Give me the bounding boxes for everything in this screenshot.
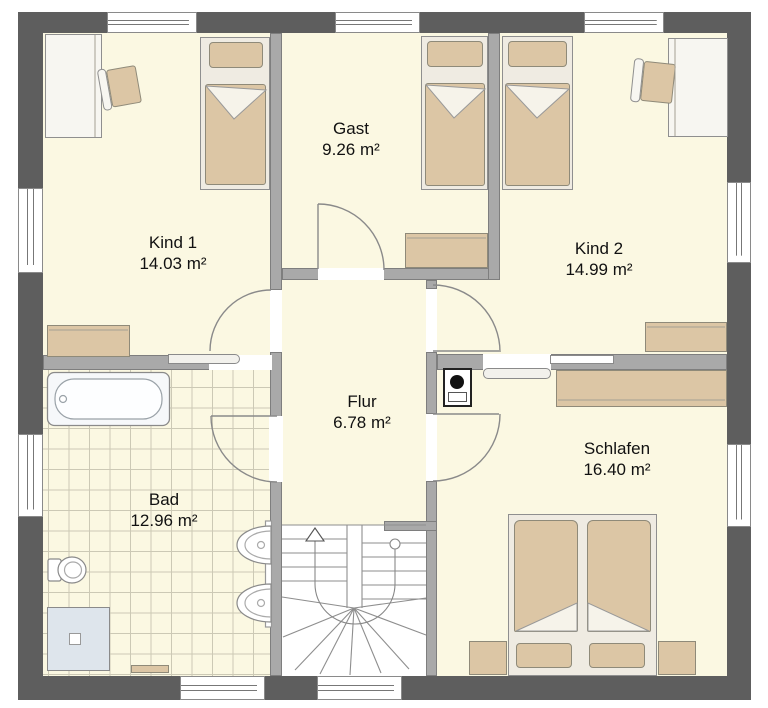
room-area: 9.26 m²	[322, 139, 380, 160]
room-name: Bad	[130, 489, 197, 510]
label-kind2: Kind 2 14.99 m²	[565, 238, 632, 280]
room-area: 14.99 m²	[565, 259, 632, 280]
label-kind1: Kind 1 14.03 m²	[139, 232, 206, 274]
label-schlafen: Schlafen 16.40 m²	[583, 438, 650, 480]
winder-treads	[282, 597, 426, 675]
gast-door-arc	[318, 204, 384, 270]
label-bad: Bad 12.96 m²	[130, 489, 197, 531]
room-area: 16.40 m²	[583, 459, 650, 480]
duvet-folds	[206, 85, 649, 631]
floor-plan: Gast 9.26 m² Kind 1 14.03 m² Kind 2 14.9…	[0, 0, 768, 708]
washbasins	[237, 521, 272, 627]
schlafen-door-arc	[433, 414, 500, 481]
plan-linework	[0, 0, 768, 708]
bathtub	[48, 373, 170, 426]
kind1-door-arc	[210, 290, 271, 351]
kind2-door-arc	[433, 285, 500, 352]
room-name: Flur	[333, 391, 391, 412]
room-area: 12.96 m²	[130, 510, 197, 531]
label-flur: Flur 6.78 m²	[333, 391, 391, 433]
room-name: Gast	[322, 118, 380, 139]
label-gast: Gast 9.26 m²	[322, 118, 380, 160]
room-area: 14.03 m²	[139, 253, 206, 274]
room-area: 6.78 m²	[333, 412, 391, 433]
bad-door-arc	[211, 416, 277, 482]
room-name: Kind 1	[139, 232, 206, 253]
bathtub-drain-icon	[60, 396, 67, 403]
stairs-up-arrow-icon	[306, 528, 324, 541]
stairs-walkline-start-icon	[390, 539, 400, 549]
furniture-detail-lines	[49, 35, 725, 400]
room-name: Kind 2	[565, 238, 632, 259]
room-name: Schlafen	[583, 438, 650, 459]
washbasin-1-drain-icon	[258, 542, 265, 549]
washbasin-2-drain-icon	[258, 600, 265, 607]
toilet	[48, 557, 86, 583]
staircase	[282, 525, 426, 675]
